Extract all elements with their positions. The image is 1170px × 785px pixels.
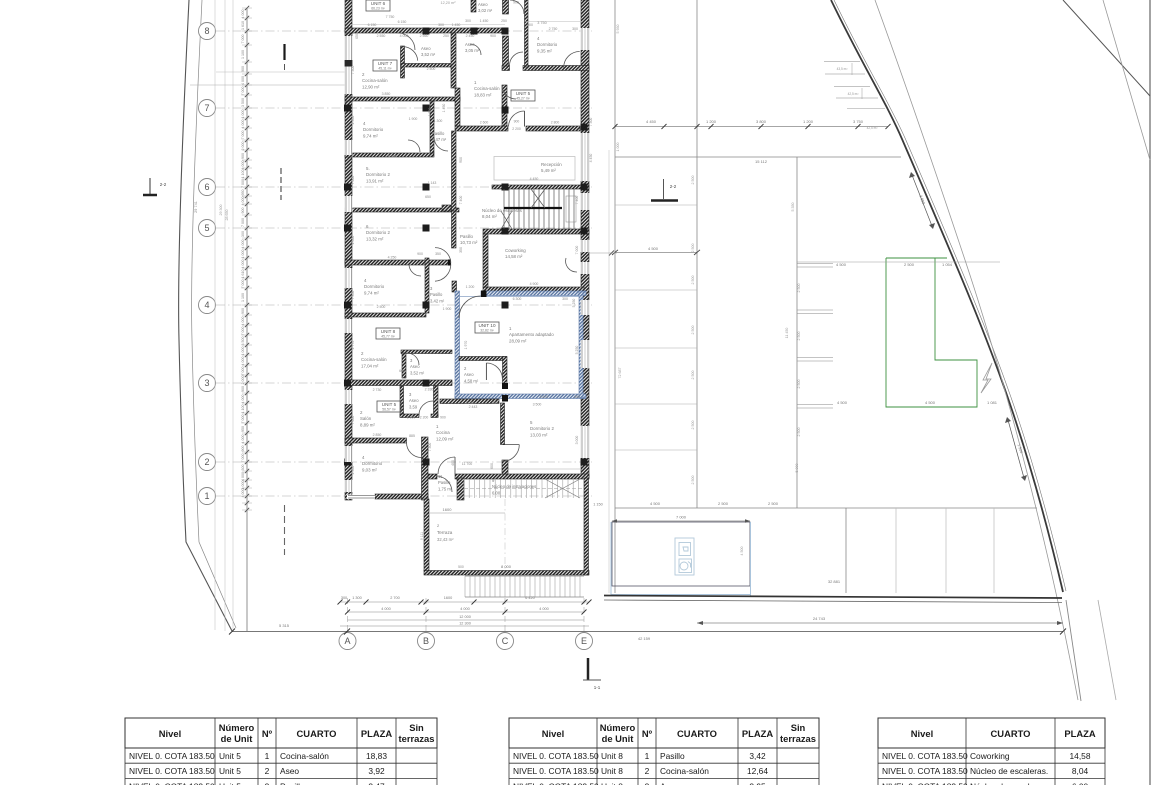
svg-text:NIVEL 0. COTA 183.50: NIVEL 0. COTA 183.50 <box>129 766 215 776</box>
svg-text:4,58 m²: 4,58 m² <box>464 378 479 383</box>
svg-text:2 700: 2 700 <box>390 596 400 600</box>
svg-text:600: 600 <box>399 369 405 373</box>
svg-text:Recepción: Recepción <box>541 162 562 167</box>
svg-text:1 200: 1 200 <box>466 285 475 289</box>
svg-text:Dormitorio: Dormitorio <box>363 127 384 132</box>
svg-text:Cocina-salón: Cocina-salón <box>361 357 387 362</box>
svg-text:1 000: 1 000 <box>241 481 245 490</box>
svg-text:1 300: 1 300 <box>352 596 362 600</box>
svg-text:2 500: 2 500 <box>691 326 695 335</box>
svg-text:CUARTO: CUARTO <box>991 728 1031 739</box>
svg-text:C: C <box>502 636 509 646</box>
svg-text:4 000: 4 000 <box>241 395 245 404</box>
svg-text:3,92: 3,92 <box>368 766 385 776</box>
svg-text:Apartamento adaptado: Apartamento adaptado <box>509 332 554 337</box>
svg-text:8,04 m²: 8,04 m² <box>482 214 497 219</box>
svg-text:3 750: 3 750 <box>537 21 547 25</box>
svg-text:2 500: 2 500 <box>797 428 801 437</box>
svg-text:PLAZA: PLAZA <box>361 728 392 739</box>
svg-text:2-2: 2-2 <box>670 184 677 189</box>
svg-text:1 000: 1 000 <box>407 416 416 420</box>
svg-text:250: 250 <box>501 19 507 23</box>
svg-text:Núcleo de instalaciones: Núcleo de instalaciones <box>492 484 536 489</box>
svg-text:1 100: 1 100 <box>241 50 245 59</box>
svg-text:3: 3 <box>265 781 270 785</box>
svg-text:2 500: 2 500 <box>797 332 801 341</box>
svg-text:1 450: 1 450 <box>480 19 489 23</box>
svg-text:Sin: Sin <box>791 722 806 733</box>
svg-text:350: 350 <box>459 247 463 253</box>
svg-text:300: 300 <box>241 465 245 471</box>
svg-text:2 500: 2 500 <box>691 476 695 485</box>
svg-text:Dormitorio: Dormitorio <box>537 42 558 47</box>
svg-text:8 000: 8 000 <box>501 564 512 569</box>
svg-text:3 500: 3 500 <box>241 98 245 107</box>
svg-text:2 330: 2 330 <box>425 388 434 392</box>
svg-text:900: 900 <box>440 416 446 420</box>
svg-text:UNIT 5: UNIT 5 <box>382 402 397 407</box>
svg-text:2 800: 2 800 <box>551 121 560 125</box>
svg-text:1 054: 1 054 <box>942 262 953 267</box>
svg-text:3,59: 3,59 <box>409 404 418 409</box>
svg-text:Aseo: Aseo <box>464 372 474 377</box>
svg-text:4 000: 4 000 <box>460 607 470 611</box>
svg-text:11 450: 11 450 <box>785 328 789 339</box>
svg-text:2 500: 2 500 <box>797 284 801 293</box>
svg-text:Pasillo: Pasillo <box>460 234 473 239</box>
svg-text:2 600: 2 600 <box>480 121 489 125</box>
svg-text:7 000: 7 000 <box>351 176 355 185</box>
svg-text:400: 400 <box>451 460 455 466</box>
svg-text:Cocina: Cocina <box>436 430 450 435</box>
svg-text:17,04 m²: 17,04 m² <box>361 363 379 368</box>
svg-text:2 200: 2 200 <box>420 416 429 420</box>
svg-text:NIVEL 0. COTA 183.50: NIVEL 0. COTA 183.50 <box>882 766 968 776</box>
svg-text:1 150: 1 150 <box>593 503 603 507</box>
svg-text:Aseo: Aseo <box>409 398 419 403</box>
svg-text:12,09 m²: 12,09 m² <box>436 436 454 441</box>
svg-text:4 500: 4 500 <box>650 501 661 506</box>
svg-text:2 500: 2 500 <box>427 67 436 71</box>
svg-text:45,11 m²: 45,11 m² <box>378 67 392 71</box>
svg-text:300: 300 <box>562 297 568 301</box>
svg-text:2 443: 2 443 <box>469 405 478 409</box>
svg-text:Cocina-salón: Cocina-salón <box>474 86 500 91</box>
svg-text:4 450: 4 450 <box>589 154 593 163</box>
svg-text:7 300: 7 300 <box>351 66 355 75</box>
svg-text:UNIT 10: UNIT 10 <box>478 323 495 328</box>
svg-text:2 300: 2 300 <box>351 466 355 475</box>
svg-text:1 100: 1 100 <box>241 405 245 414</box>
svg-text:3,05 m²: 3,05 m² <box>465 48 480 53</box>
svg-text:900: 900 <box>241 153 245 159</box>
svg-text:4 500: 4 500 <box>836 262 847 267</box>
svg-text:Cocina-salón: Cocina-salón <box>280 751 329 761</box>
svg-text:NIVEL 0. COTA 183.50: NIVEL 0. COTA 183.50 <box>129 781 215 785</box>
svg-text:2 500: 2 500 <box>768 501 779 506</box>
svg-text:43,5 m²: 43,5 m² <box>837 67 848 71</box>
svg-text:Coworking: Coworking <box>970 751 1010 761</box>
svg-text:8,89 m²: 8,89 m² <box>360 422 375 427</box>
svg-text:NIVEL 0. COTA 183.50: NIVEL 0. COTA 183.50 <box>513 766 599 776</box>
svg-text:Dormitorio 2: Dormitorio 2 <box>530 426 554 431</box>
svg-text:2 300: 2 300 <box>351 116 355 125</box>
svg-text:terrazas: terrazas <box>399 733 435 744</box>
svg-text:Número: Número <box>219 722 255 733</box>
svg-text:3,47 m²: 3,47 m² <box>432 137 447 142</box>
svg-text:4 500: 4 500 <box>837 400 848 405</box>
svg-text:Nivel: Nivel <box>159 728 181 739</box>
svg-text:2 200: 2 200 <box>512 127 521 131</box>
svg-text:4 000: 4 000 <box>241 240 245 249</box>
svg-text:5 350: 5 350 <box>791 203 795 212</box>
svg-text:18,83: 18,83 <box>366 751 387 761</box>
svg-text:4 000: 4 000 <box>241 197 245 206</box>
svg-text:3 800: 3 800 <box>756 119 767 124</box>
svg-text:1 200: 1 200 <box>803 119 814 124</box>
svg-text:Sin: Sin <box>409 722 424 733</box>
svg-text:10,73 m²: 10,73 m² <box>460 240 478 245</box>
svg-text:18,83 m²: 18,83 m² <box>474 92 492 97</box>
svg-text:5 870: 5 870 <box>540 395 549 399</box>
svg-text:3,52 m²: 3,52 m² <box>421 52 436 57</box>
svg-text:1 200: 1 200 <box>706 119 717 124</box>
svg-text:Aseo: Aseo <box>421 46 431 51</box>
svg-text:7 000: 7 000 <box>241 327 245 336</box>
svg-text:Unit 8: Unit 8 <box>601 766 623 776</box>
svg-text:32 881: 32 881 <box>828 579 841 584</box>
svg-text:900: 900 <box>241 66 245 72</box>
svg-text:4 000: 4 000 <box>241 357 245 366</box>
svg-text:5 250: 5 250 <box>575 346 579 355</box>
svg-text:3,52 m²: 3,52 m² <box>410 370 425 375</box>
svg-text:E: E <box>581 636 587 646</box>
svg-text:2: 2 <box>645 766 650 776</box>
svg-text:4 900: 4 900 <box>530 282 539 286</box>
svg-text:12,90 m²: 12,90 m² <box>362 84 380 89</box>
svg-text:1 300: 1 300 <box>434 119 443 123</box>
svg-text:4 500: 4 500 <box>925 400 936 405</box>
svg-text:300: 300 <box>438 23 444 27</box>
svg-text:2 000: 2 000 <box>241 142 245 151</box>
svg-text:3,42: 3,42 <box>749 751 766 761</box>
svg-text:13,32 m²: 13,32 m² <box>366 236 384 241</box>
svg-text:2 500: 2 500 <box>691 371 695 380</box>
svg-text:1 300: 1 300 <box>428 108 432 117</box>
svg-text:3: 3 <box>645 781 650 785</box>
svg-text:7 000: 7 000 <box>575 246 579 255</box>
svg-text:UNIT 8: UNIT 8 <box>381 329 396 334</box>
svg-text:Núcleo de escal: Núcleo de escal <box>970 781 1030 785</box>
svg-text:6,00: 6,00 <box>492 490 501 495</box>
svg-text:900: 900 <box>490 34 496 38</box>
svg-text:terrazas: terrazas <box>780 733 816 744</box>
svg-text:950: 950 <box>241 426 245 432</box>
svg-text:885: 885 <box>409 434 415 438</box>
svg-text:CUARTO: CUARTO <box>677 728 717 739</box>
svg-text:2-2: 2-2 <box>160 182 167 187</box>
svg-text:32,43 m²: 32,43 m² <box>437 537 454 542</box>
svg-text:1600: 1600 <box>443 507 453 512</box>
svg-text:3 500: 3 500 <box>533 403 542 407</box>
svg-text:900: 900 <box>241 208 245 214</box>
svg-text:650: 650 <box>425 195 431 199</box>
svg-text:3 850: 3 850 <box>382 92 391 96</box>
svg-text:Cocina-salón: Cocina-salón <box>660 766 709 776</box>
svg-text:7 300: 7 300 <box>589 118 593 127</box>
svg-text:Aseo: Aseo <box>410 364 420 369</box>
svg-text:Pasillo: Pasillo <box>660 751 685 761</box>
svg-text:7 000: 7 000 <box>351 416 355 425</box>
svg-text:11 700: 11 700 <box>462 462 472 466</box>
svg-text:NIVEL 0. COTA 183.50: NIVEL 0. COTA 183.50 <box>513 751 599 761</box>
svg-text:1 000: 1 000 <box>241 250 245 259</box>
svg-text:CUARTO: CUARTO <box>297 728 337 739</box>
svg-text:4: 4 <box>204 300 209 310</box>
svg-text:42,5 m²: 42,5 m² <box>867 126 878 130</box>
svg-text:32,82 m²: 32,82 m² <box>480 329 494 333</box>
svg-text:1,75 m²: 1,75 m² <box>438 486 453 491</box>
svg-text:45,27 m²: 45,27 m² <box>516 97 530 101</box>
svg-text:5 930: 5 930 <box>616 25 620 34</box>
svg-text:950: 950 <box>241 190 245 196</box>
svg-text:4 000: 4 000 <box>241 260 245 269</box>
svg-text:Unit 8: Unit 8 <box>601 781 623 785</box>
svg-text:1 000: 1 000 <box>241 110 245 119</box>
svg-text:7 000: 7 000 <box>241 367 245 376</box>
svg-text:2 500: 2 500 <box>797 380 801 389</box>
svg-text:1 000: 1 000 <box>616 143 620 152</box>
svg-text:28,09 m²: 28,09 m² <box>509 338 527 343</box>
svg-text:2: 2 <box>265 766 270 776</box>
svg-text:3 750: 3 750 <box>853 119 864 124</box>
svg-text:4 250: 4 250 <box>388 256 397 260</box>
svg-text:Número: Número <box>600 722 636 733</box>
svg-text:300: 300 <box>341 596 347 600</box>
svg-text:de Unit: de Unit <box>221 733 253 744</box>
svg-text:12,20 m²: 12,20 m² <box>441 1 457 5</box>
svg-text:Dormitorio 2: Dormitorio 2 <box>366 172 390 177</box>
svg-text:Coworking: Coworking <box>505 248 526 253</box>
svg-text:4 450: 4 450 <box>646 119 657 124</box>
svg-text:29 741: 29 741 <box>194 201 198 213</box>
svg-text:Núcleo de escaleras.: Núcleo de escaleras. <box>970 766 1048 776</box>
svg-text:56,57 m²: 56,57 m² <box>382 408 396 412</box>
svg-text:2 500: 2 500 <box>691 276 695 285</box>
svg-text:1 000: 1 000 <box>241 347 245 356</box>
svg-text:6 150: 6 150 <box>398 20 407 24</box>
svg-text:Nivel: Nivel <box>911 728 933 739</box>
svg-text:42 159: 42 159 <box>638 636 651 641</box>
svg-text:2 500: 2 500 <box>691 244 695 253</box>
svg-text:3,02 m²: 3,02 m² <box>478 8 493 13</box>
svg-text:2 450: 2 450 <box>466 34 475 38</box>
svg-text:3,47: 3,47 <box>368 781 385 785</box>
svg-text:1 610: 1 610 <box>241 21 245 30</box>
svg-text:4 000: 4 000 <box>241 76 245 85</box>
svg-text:Nº: Nº <box>262 728 273 739</box>
svg-text:5: 5 <box>204 223 209 233</box>
svg-text:1 081: 1 081 <box>987 400 998 405</box>
svg-text:2 000: 2 000 <box>241 376 245 385</box>
svg-text:6 420: 6 420 <box>525 596 535 600</box>
svg-text:7 000: 7 000 <box>241 87 245 96</box>
svg-text:4 000: 4 000 <box>400 34 409 38</box>
svg-text:Salón: Salón <box>360 416 372 421</box>
svg-text:1 100: 1 100 <box>241 293 245 302</box>
svg-text:300: 300 <box>572 27 578 31</box>
svg-text:4 000: 4 000 <box>241 472 245 481</box>
svg-text:7: 7 <box>204 103 209 113</box>
svg-text:Cocina-salón: Cocina-salón <box>362 78 388 83</box>
svg-text:2 560: 2 560 <box>420 34 429 38</box>
svg-text:9,74 m²: 9,74 m² <box>363 133 378 138</box>
svg-text:A: A <box>344 636 350 646</box>
svg-text:1 970: 1 970 <box>464 341 468 350</box>
svg-text:UNIT 5: UNIT 5 <box>516 91 531 96</box>
svg-text:Dormitorio: Dormitorio <box>364 284 385 289</box>
svg-text:Pasillo: Pasillo <box>430 292 443 297</box>
svg-text:7 400: 7 400 <box>459 196 463 205</box>
svg-text:NIVEL 0. COTA 183.50: NIVEL 0. COTA 183.50 <box>513 781 599 785</box>
svg-text:6,00: 6,00 <box>1072 781 1089 785</box>
svg-text:900: 900 <box>514 120 520 124</box>
svg-text:4 250: 4 250 <box>388 155 397 159</box>
svg-text:1600: 1600 <box>444 596 452 600</box>
svg-text:6: 6 <box>204 182 209 192</box>
svg-text:Aseo: Aseo <box>280 766 299 776</box>
svg-text:9,35 m²: 9,35 m² <box>537 48 552 53</box>
svg-text:3,42 m²: 3,42 m² <box>430 298 445 303</box>
svg-text:5 315: 5 315 <box>279 623 290 628</box>
svg-text:7 000: 7 000 <box>241 35 245 44</box>
svg-text:900: 900 <box>417 252 423 256</box>
svg-text:900: 900 <box>241 446 245 452</box>
svg-text:500: 500 <box>458 565 464 569</box>
svg-text:4 000: 4 000 <box>539 607 549 611</box>
svg-text:2 730: 2 730 <box>373 388 382 392</box>
svg-text:900: 900 <box>459 157 463 163</box>
svg-text:900: 900 <box>527 23 533 27</box>
svg-text:Unit 5: Unit 5 <box>219 751 241 761</box>
svg-text:1 610: 1 610 <box>241 270 245 279</box>
svg-text:1: 1 <box>265 751 270 761</box>
svg-text:15 112: 15 112 <box>755 159 768 164</box>
svg-text:9,03 m²: 9,03 m² <box>362 467 377 472</box>
svg-text:4 000: 4 000 <box>241 10 245 19</box>
svg-text:5.: 5. <box>366 166 370 171</box>
svg-text:13,91 m²: 13,91 m² <box>366 178 384 183</box>
svg-text:1 143: 1 143 <box>428 181 437 185</box>
svg-text:Unit 8: Unit 8 <box>601 751 623 761</box>
svg-text:12,64: 12,64 <box>747 766 768 776</box>
svg-text:350: 350 <box>574 395 580 399</box>
svg-text:2: 2 <box>204 457 209 467</box>
svg-text:72 687: 72 687 <box>618 368 622 379</box>
svg-text:350: 350 <box>435 252 441 256</box>
svg-text:9 111: 9 111 <box>420 532 424 540</box>
svg-text:Nivel: Nivel <box>542 728 564 739</box>
svg-text:300: 300 <box>241 231 245 237</box>
svg-text:1 450: 1 450 <box>442 104 446 113</box>
svg-text:Aseo: Aseo <box>478 2 488 7</box>
svg-text:5,49 m²: 5,49 m² <box>541 168 556 173</box>
svg-text:1-1: 1-1 <box>594 685 601 690</box>
svg-text:2 500: 2 500 <box>377 305 386 309</box>
svg-text:1 450: 1 450 <box>452 23 461 27</box>
svg-text:Terraza: Terraza <box>437 530 453 535</box>
svg-text:Pasillo: Pasillo <box>432 131 445 136</box>
svg-text:12 000: 12 000 <box>459 615 471 619</box>
svg-text:Pasillo: Pasillo <box>280 781 305 785</box>
svg-text:Dormitorio: Dormitorio <box>362 461 383 466</box>
svg-text:7 000: 7 000 <box>676 515 687 520</box>
svg-text:Aseo: Aseo <box>465 42 475 47</box>
svg-text:28 650: 28 650 <box>225 210 229 221</box>
svg-text:14,58: 14,58 <box>1070 751 1091 761</box>
svg-text:14,58 m²: 14,58 m² <box>505 254 523 259</box>
svg-text:2 500: 2 500 <box>718 501 729 506</box>
svg-text:7 000: 7 000 <box>241 131 245 140</box>
svg-text:Dormitorio 2: Dormitorio 2 <box>366 230 390 235</box>
svg-text:de Unit: de Unit <box>602 733 634 744</box>
svg-text:Nº: Nº <box>642 728 653 739</box>
svg-text:PLAZA: PLAZA <box>742 728 773 739</box>
svg-text:5 250: 5 250 <box>572 299 576 308</box>
svg-text:2 550: 2 550 <box>377 34 386 38</box>
svg-text:PLAZA: PLAZA <box>1064 728 1095 739</box>
svg-text:3 500: 3 500 <box>241 337 245 346</box>
svg-text:4 000: 4 000 <box>241 161 245 170</box>
svg-text:2 750: 2 750 <box>549 27 558 31</box>
svg-text:11: 11 <box>438 474 443 479</box>
svg-text:NIVEL 0. COTA 183.50: NIVEL 0. COTA 183.50 <box>882 781 968 785</box>
svg-text:1 900: 1 900 <box>409 117 418 121</box>
svg-text:900: 900 <box>241 386 245 392</box>
svg-text:300: 300 <box>465 19 471 23</box>
svg-text:4 000: 4 000 <box>241 120 245 129</box>
svg-text:NIVEL 0. COTA 183.50: NIVEL 0. COTA 183.50 <box>882 751 968 761</box>
svg-text:6 150: 6 150 <box>368 23 377 27</box>
svg-text:UNIT 6: UNIT 6 <box>371 1 386 6</box>
svg-text:7 000: 7 000 <box>241 415 245 424</box>
svg-text:7 350: 7 350 <box>351 291 355 300</box>
svg-text:7 000: 7 000 <box>241 179 245 188</box>
svg-text:2 500: 2 500 <box>904 262 915 267</box>
svg-text:4 500: 4 500 <box>648 246 659 251</box>
svg-text:13,03 m²: 13,03 m² <box>530 432 548 437</box>
svg-text:7 000: 7 000 <box>241 218 245 227</box>
svg-text:7 750: 7 750 <box>386 15 395 19</box>
svg-text:2 850: 2 850 <box>373 433 382 437</box>
svg-text:8,04: 8,04 <box>1072 766 1089 776</box>
svg-text:900: 900 <box>492 401 498 405</box>
svg-text:2 500: 2 500 <box>691 421 695 430</box>
svg-text:250: 250 <box>443 34 449 38</box>
svg-text:1 100: 1 100 <box>241 170 245 179</box>
svg-text:4 500: 4 500 <box>740 547 744 556</box>
svg-text:Unit 5: Unit 5 <box>219 766 241 776</box>
svg-text:Núcleo de escaleras: Núcleo de escaleras <box>482 208 523 213</box>
svg-text:Pasillo: Pasillo <box>438 480 451 485</box>
svg-text:3,95: 3,95 <box>749 781 766 785</box>
svg-text:24 743: 24 743 <box>813 616 826 621</box>
svg-text:66,23 m²: 66,23 m² <box>371 7 385 11</box>
svg-text:900: 900 <box>241 308 245 314</box>
svg-text:1: 1 <box>645 751 650 761</box>
svg-text:6 300: 6 300 <box>513 297 522 301</box>
svg-text:3: 3 <box>204 378 209 388</box>
